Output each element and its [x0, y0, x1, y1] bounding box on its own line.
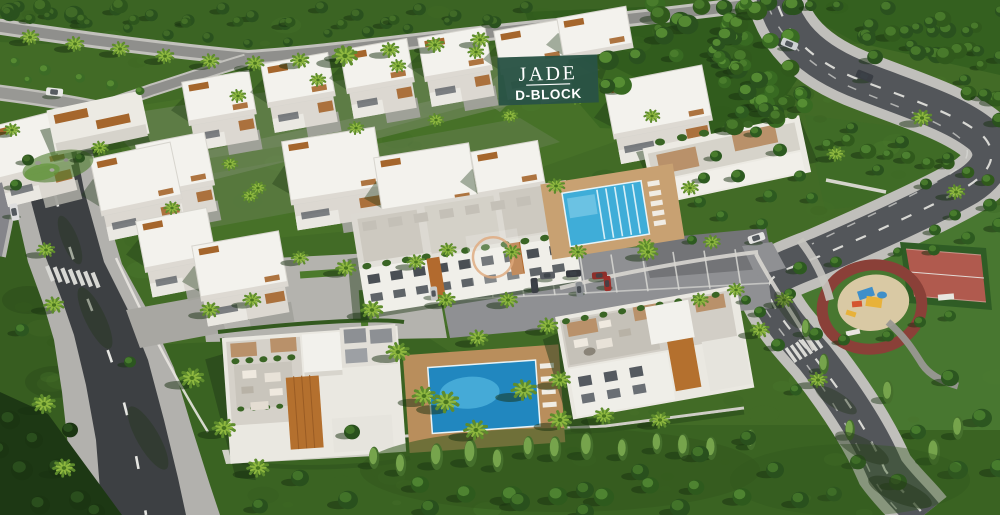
- svg-text:D-BLOCK: D-BLOCK: [515, 86, 582, 103]
- svg-text:JADE: JADE: [518, 62, 578, 86]
